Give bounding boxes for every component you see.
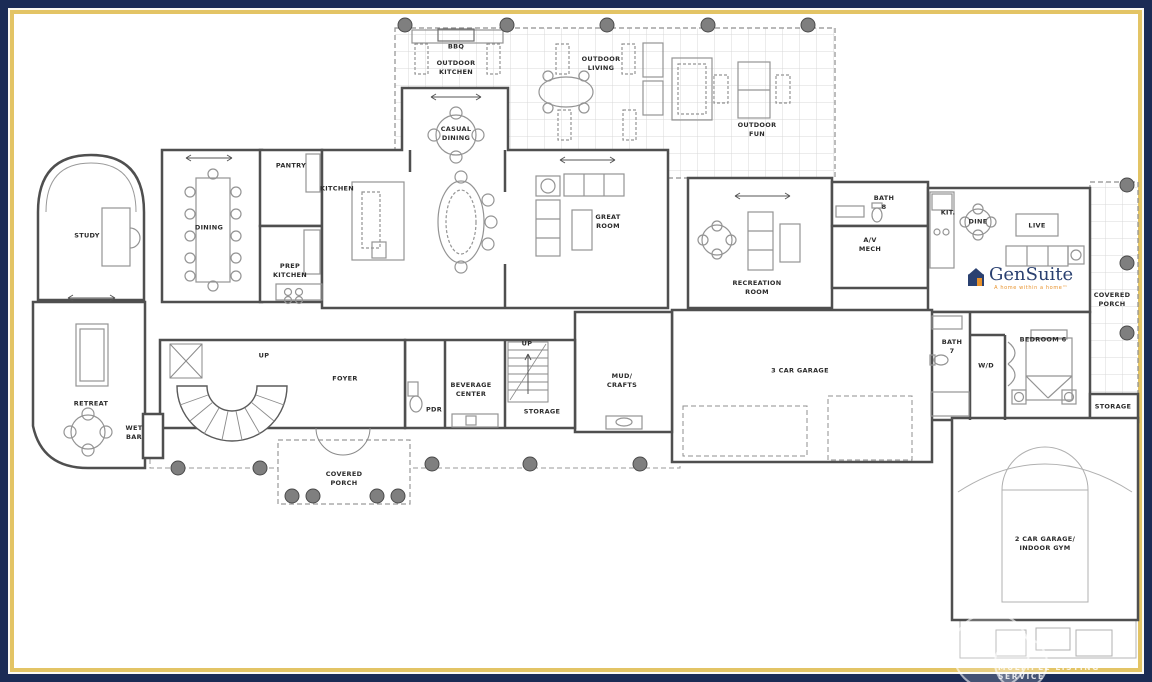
room-label-storage-mid: STORAGE [524,408,561,417]
room-label-bedroom-6: BEDROOM 6 [1020,336,1067,345]
room-label-outdoor-living: OUTDOOR LIVING [582,55,621,73]
room-label-dining: DINING [195,224,223,233]
room-label-up-spiral: UP [259,352,270,361]
room-label-study: STUDY [74,232,100,241]
room-label-outdoor-kitchen: OUTDOOR KITCHEN [437,59,476,77]
gensuite-logo-text: GenSuite [989,266,1073,284]
gensuite-logo-tagline: A home within a home™ [994,285,1068,291]
room-label-casual-dining: CASUAL DINING [441,125,472,143]
room-label-wet-bar: WET BAR [126,424,143,442]
room-label-pdr: PDR [426,406,442,415]
room-label-bath-7: BATH 7 [942,338,963,356]
room-label-retreat: RETREAT [74,400,108,409]
room-label-up-mid: UP [522,340,533,349]
room-label-bath-8: BATH 8 [874,194,895,212]
gensuite-house-icon [966,266,986,288]
room-label-kit: KIT. [941,209,956,218]
mls-watermark: MULTIPLE LISTING SERVICE [998,663,1148,681]
room-label-beverage-center: BEVERAGE CENTER [450,381,491,399]
room-label-pantry: PANTRY [276,162,306,171]
room-label-prep-kitchen: PREP KITCHEN [273,262,307,280]
room-label-av-mech: A/V MECH [859,236,881,254]
room-label-covered-porch-bottom: COVERED PORCH [326,470,363,488]
room-label-foyer: FOYER [332,375,357,384]
room-label-live: LIVE [1028,222,1045,231]
gensuite-logo: GenSuite A home within a home™ [966,266,1073,291]
room-label-great-room: GREAT ROOM [595,213,620,231]
room-label-outdoor-fun: OUTDOOR FUN [738,121,777,139]
floor-plan-image: BBQOUTDOOR KITCHENOUTDOOR LIVINGOUTDOOR … [0,0,1152,682]
room-label-mud-crafts: MUD/ CRAFTS [607,372,637,390]
room-label-covered-porch-right: COVERED PORCH [1094,291,1131,309]
room-label-two-car-garage: 2 CAR GARAGE/ INDOOR GYM [1015,535,1075,553]
room-label-three-car-garage: 3 CAR GARAGE [771,367,829,376]
room-labels-layer: BBQOUTDOOR KITCHENOUTDOOR LIVINGOUTDOOR … [0,0,1152,682]
room-label-recreation-room: RECREATION ROOM [732,279,781,297]
room-label-wd-closet: W/D [978,362,994,371]
room-label-kitchen: KITCHEN [320,185,354,194]
room-label-bbq: BBQ [448,43,464,52]
room-label-dine: DINE [969,218,988,227]
room-label-storage-right: STORAGE [1095,403,1132,412]
